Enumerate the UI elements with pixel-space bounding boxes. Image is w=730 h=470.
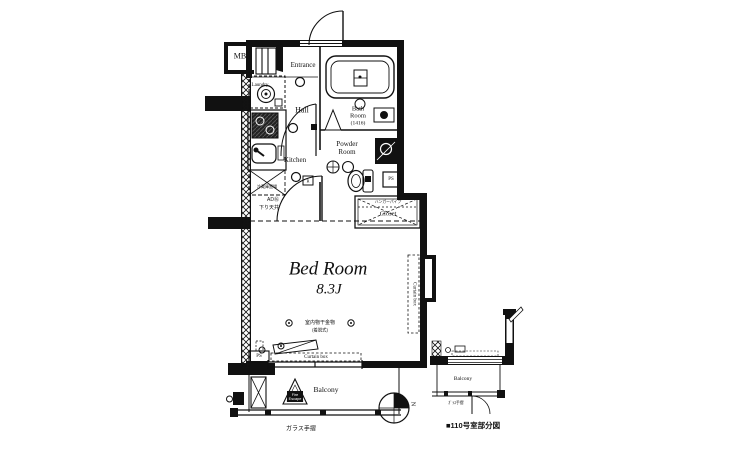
lowered-ceiling-label: 下り天井 <box>259 206 279 212</box>
mb-label: MB <box>234 53 246 62</box>
bedroom-label: Bed Room <box>289 258 368 279</box>
washbasin <box>327 161 354 173</box>
pipe-space-lower-label: PS <box>256 354 262 360</box>
door-tag-label: AD⑯ <box>267 198 279 204</box>
partition-board <box>251 377 266 408</box>
entrance-label: Entrance <box>291 62 316 70</box>
kitchen-counter <box>248 110 286 170</box>
fridge-space-label: 冷蔵庫置場 <box>257 185 277 189</box>
drying-fixture-label: 室内物干金物 <box>305 321 335 327</box>
compass-north-label: N <box>409 402 416 407</box>
compass-icon <box>379 393 409 423</box>
closet-label: Closet <box>380 210 397 217</box>
bath-line1: Bath <box>350 106 366 113</box>
right-wall-window <box>420 255 436 302</box>
window-side-counter <box>256 340 318 354</box>
bedroom-size-label: 8.3J <box>316 282 341 299</box>
outer-walls <box>205 40 427 405</box>
balcony-railing <box>230 408 401 417</box>
inset-balcony-label: Balcony <box>454 376 472 382</box>
balcony-label: Balcony <box>314 386 339 394</box>
laundry-label: Laundry <box>252 83 269 89</box>
pipe-space-upper-label: PS <box>388 177 394 183</box>
kitchen-sink <box>252 144 276 163</box>
hatched-party-wall <box>241 70 251 368</box>
fire-escape-line2: Escape <box>289 397 302 401</box>
drain-mark <box>227 396 233 402</box>
floor-plan-canvas: MB Entrance Hall Laundry Kitchen Bath Ro… <box>0 0 730 470</box>
bedroom-door-arc <box>277 176 322 221</box>
drying-fixture-sub: (着脱式) <box>312 328 328 333</box>
bath-line2: Room <box>350 113 366 120</box>
vanity-unit <box>375 138 397 164</box>
inset-glass-rail-label: ｶﾞﾗｽ手摺 <box>448 400 463 404</box>
curtain-box-right-label: Curtain box <box>411 282 417 306</box>
toilet <box>348 170 373 192</box>
floor-plan-drawing <box>0 0 730 470</box>
kitchen-label: Kitchen <box>284 157 306 165</box>
hall-label: Hall <box>295 107 309 116</box>
inset-drawing <box>430 307 523 414</box>
inset-door-arc <box>472 396 490 414</box>
shoe-cabinet <box>256 44 283 74</box>
outlet-mark-label: R <box>306 178 309 183</box>
inset-caption: ■110号室部分図 <box>446 422 500 430</box>
refrigerator-space <box>249 170 285 195</box>
powder-room-label: Powder Room <box>336 141 357 157</box>
stove <box>252 113 278 138</box>
powder-line2: Room <box>336 149 357 157</box>
bath-folding-door <box>325 110 341 130</box>
bath-room-label: Bath Room (1416) <box>350 106 366 127</box>
washing-machine <box>249 76 285 108</box>
glass-rail-label: ガラス手摺 <box>286 426 316 433</box>
curtain-box-bottom-label: Curtain box <box>304 355 328 361</box>
bath-size: (1416) <box>350 120 366 126</box>
closet-note: ハンガーパイプ <box>375 200 402 204</box>
hall-downlights <box>289 78 318 182</box>
interior-partitions <box>320 47 397 221</box>
